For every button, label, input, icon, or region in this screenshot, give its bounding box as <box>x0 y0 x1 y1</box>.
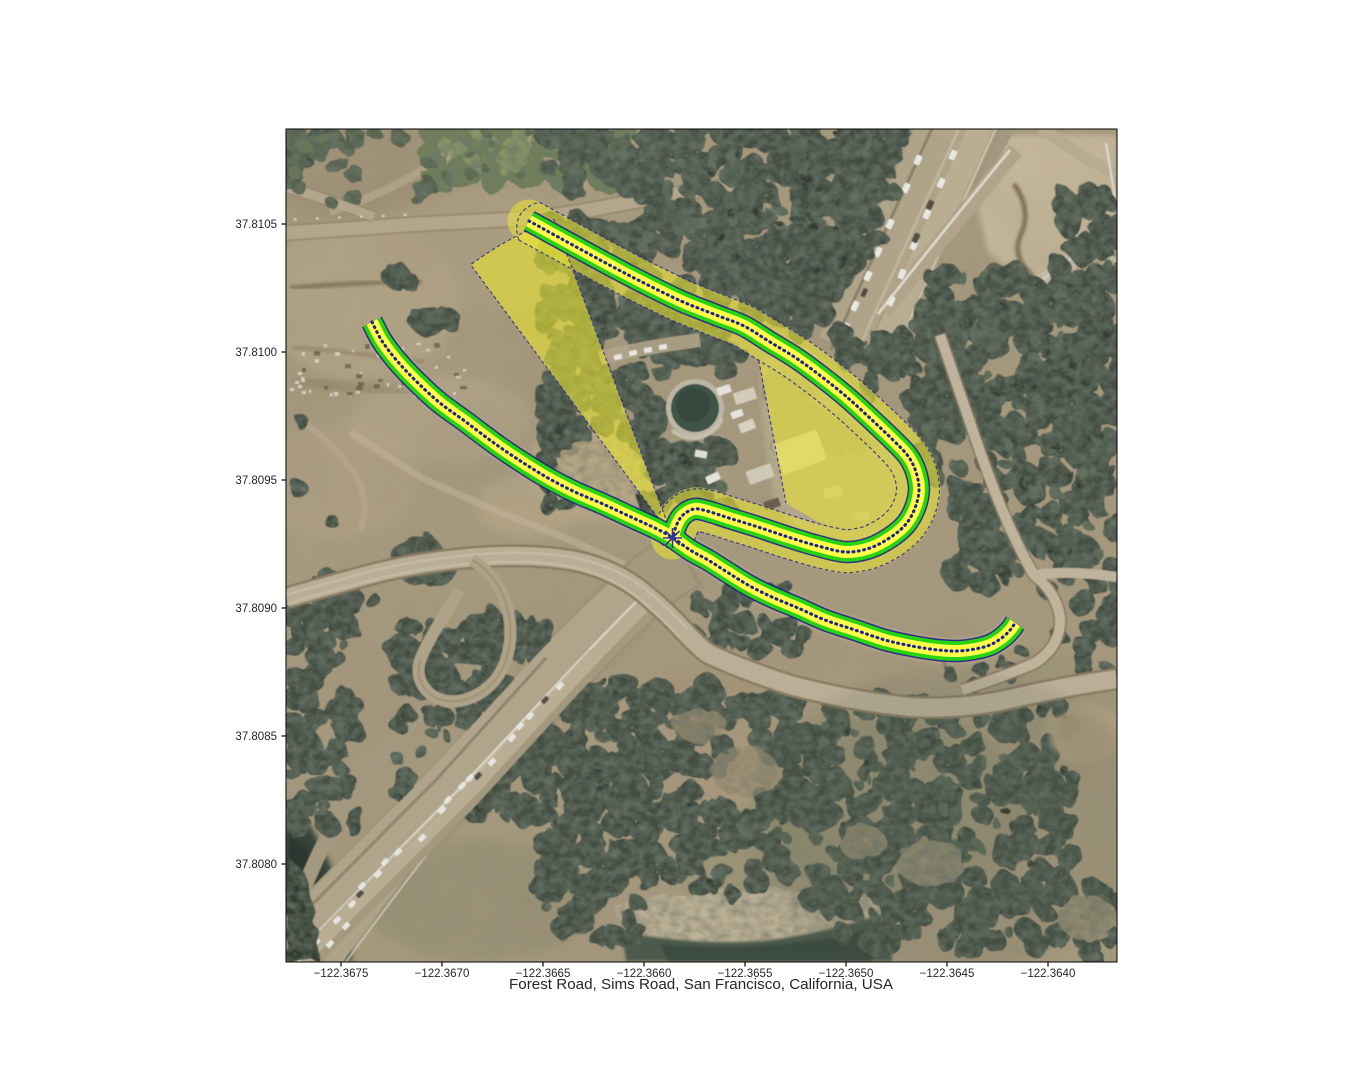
svg-text:−122.3670: −122.3670 <box>415 968 470 980</box>
svg-text:−122.3645: −122.3645 <box>920 968 975 980</box>
svg-text:37.8105: 37.8105 <box>235 219 277 231</box>
svg-text:37.8090: 37.8090 <box>235 603 277 615</box>
svg-text:37.8100: 37.8100 <box>235 347 277 359</box>
svg-text:−122.3675: −122.3675 <box>314 968 369 980</box>
svg-text:37.8085: 37.8085 <box>235 731 277 743</box>
svg-text:Forest Road, Sims Road, San Fr: Forest Road, Sims Road, San Francisco, C… <box>509 976 894 993</box>
svg-text:−122.3640: −122.3640 <box>1021 968 1076 980</box>
svg-text:37.8080: 37.8080 <box>235 859 277 871</box>
svg-text:37.8095: 37.8095 <box>235 475 277 487</box>
